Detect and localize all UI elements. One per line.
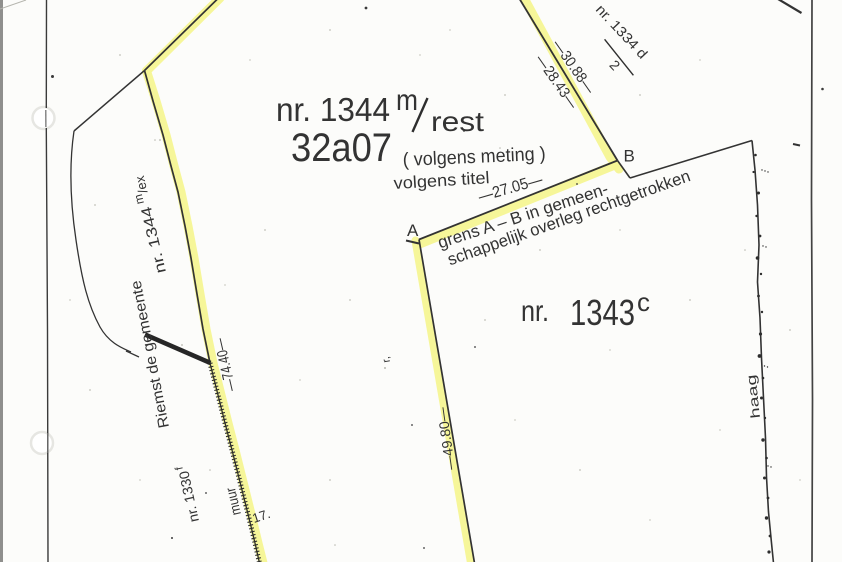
svg-text:A: A (407, 221, 419, 240)
svg-text:c: c (637, 287, 650, 317)
svg-text:1343: 1343 (570, 292, 635, 333)
svg-text:nr. 1344: nr. 1344 (276, 91, 390, 128)
svg-text:32a07: 32a07 (291, 126, 392, 170)
svg-text:m: m (396, 84, 418, 117)
svg-text:rest: rest (431, 106, 484, 137)
svg-text:nr.: nr. (521, 295, 549, 328)
svg-text:B: B (624, 147, 635, 166)
